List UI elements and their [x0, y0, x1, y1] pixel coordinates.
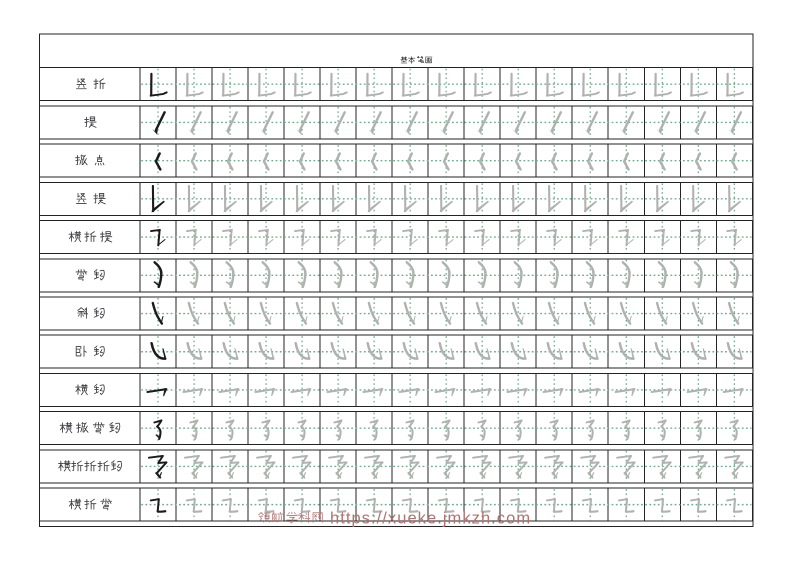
svg-text:https://xueke.jmkzh.com: https://xueke.jmkzh.com — [330, 510, 531, 528]
